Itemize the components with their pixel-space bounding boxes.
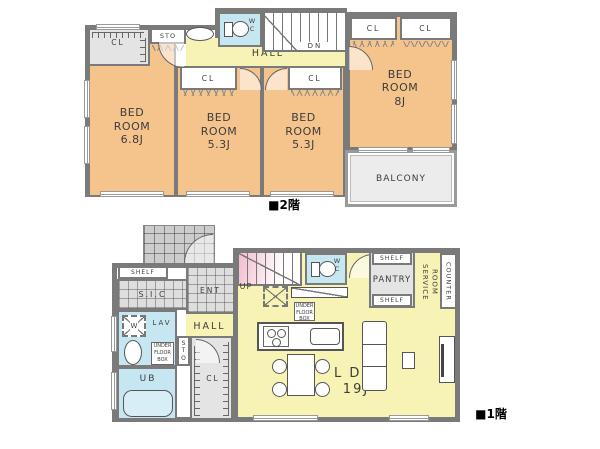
window bbox=[84, 126, 90, 164]
window bbox=[451, 60, 457, 100]
hanger-marks bbox=[223, 342, 229, 416]
bathtub-icon bbox=[123, 390, 173, 417]
entrance-shelf: SHELF bbox=[118, 266, 168, 279]
window bbox=[111, 372, 117, 410]
kitchen-sink-icon bbox=[310, 328, 340, 345]
sofa bbox=[362, 321, 387, 391]
window bbox=[253, 415, 318, 421]
pantry-label: PANTRY bbox=[373, 275, 412, 285]
closet-label: CL bbox=[202, 74, 215, 83]
stairs-cut-line bbox=[262, 13, 298, 52]
window bbox=[186, 191, 250, 197]
fold-door-marks bbox=[353, 41, 394, 47]
closet-label: CL bbox=[308, 74, 321, 83]
cupboard bbox=[291, 287, 348, 298]
refrigerator-box bbox=[263, 286, 288, 307]
fold-door-marks bbox=[291, 90, 339, 96]
dining-table bbox=[287, 354, 315, 396]
fold-door-marks bbox=[183, 90, 234, 96]
washbasin-icon bbox=[124, 340, 142, 365]
room-lavatory: W LAV UNDER FLOOR BOX bbox=[117, 310, 177, 367]
chair-icon bbox=[315, 359, 330, 374]
lav-label: LAV bbox=[146, 319, 178, 327]
storage-2f-label: STO bbox=[160, 32, 176, 40]
under-floor-box: UNDER FLOOR BOX bbox=[151, 342, 174, 365]
room-shoe-closet: S.I.C bbox=[117, 279, 188, 310]
stairs-cut-line bbox=[238, 253, 302, 286]
closet-bedroom-8-left: CL bbox=[350, 17, 397, 40]
room-balcony: BALCONY bbox=[345, 150, 457, 207]
stove-icon bbox=[263, 326, 289, 347]
shelf-label: SHELF bbox=[131, 269, 155, 276]
room-wc-2f: W C bbox=[218, 12, 262, 47]
washing-machine-icon: W bbox=[122, 315, 146, 337]
room-unit-bath: UB bbox=[117, 367, 177, 420]
shelf-label: SHELF bbox=[380, 297, 404, 304]
floor1-label: ■1階 bbox=[461, 405, 521, 422]
hanger-marks bbox=[92, 32, 144, 38]
closet-label: CL bbox=[419, 24, 432, 33]
ub-label: UB bbox=[133, 374, 163, 384]
hanger-marks bbox=[140, 38, 146, 62]
closet-label: CL bbox=[367, 24, 380, 33]
entrance-label: ENT bbox=[200, 286, 221, 295]
window bbox=[111, 316, 117, 352]
window bbox=[84, 80, 90, 118]
chair-icon bbox=[272, 359, 287, 374]
closet-bedroom-b: CL bbox=[288, 66, 342, 90]
counter: COUNTER bbox=[440, 253, 457, 309]
hall-1f-label: HALL bbox=[193, 321, 225, 332]
fold-door-marks bbox=[403, 41, 449, 47]
toilet-icon bbox=[224, 19, 250, 39]
closet-label: CL bbox=[96, 38, 140, 47]
bedroom-68-label: BED ROOM 6.8J bbox=[114, 106, 150, 146]
storage-1f: S T O bbox=[177, 336, 190, 366]
pantry-shelf-top: SHELF bbox=[372, 252, 412, 265]
window bbox=[96, 24, 140, 30]
room-wc-1f: W C bbox=[305, 253, 347, 285]
room-entrance: ENT bbox=[186, 268, 233, 312]
washer-label: W bbox=[130, 322, 139, 330]
closet-bedroom-8-right: CL bbox=[400, 17, 452, 40]
window bbox=[412, 147, 450, 153]
window bbox=[358, 147, 408, 153]
balcony-label: BALCONY bbox=[376, 174, 426, 184]
tv-board bbox=[439, 336, 455, 383]
counter-label: COUNTER bbox=[445, 262, 453, 301]
floor-plan: BALCONY HALL BED ROOM 6.8J BED ROOM 5.3J… bbox=[0, 0, 600, 449]
floor2-label: ■2階 bbox=[254, 196, 314, 213]
closet-bedroom-a: CL bbox=[180, 66, 237, 90]
room-hall-1f: HALL bbox=[186, 312, 233, 338]
window bbox=[100, 191, 164, 197]
window bbox=[451, 104, 457, 144]
bedroom-53b-label: BED ROOM 5.3J bbox=[285, 111, 321, 151]
chair-icon bbox=[315, 382, 330, 397]
window bbox=[389, 415, 429, 421]
washbasin-icon bbox=[186, 27, 214, 41]
storage-1f-label: S T O bbox=[181, 340, 186, 363]
bedroom-53a-label: BED ROOM 5.3J bbox=[201, 111, 237, 151]
sic-label: S.I.C bbox=[138, 290, 166, 299]
room-closet-walkin: CL bbox=[88, 28, 150, 66]
kitchen-counter bbox=[257, 322, 344, 351]
window bbox=[270, 191, 334, 197]
tv-icon bbox=[441, 344, 444, 377]
side-table bbox=[402, 352, 415, 369]
shelf-label: SHELF bbox=[380, 255, 404, 262]
chair-icon bbox=[272, 382, 287, 397]
pantry-shelf-bottom: SHELF bbox=[372, 294, 412, 307]
toilet-icon bbox=[311, 259, 337, 279]
